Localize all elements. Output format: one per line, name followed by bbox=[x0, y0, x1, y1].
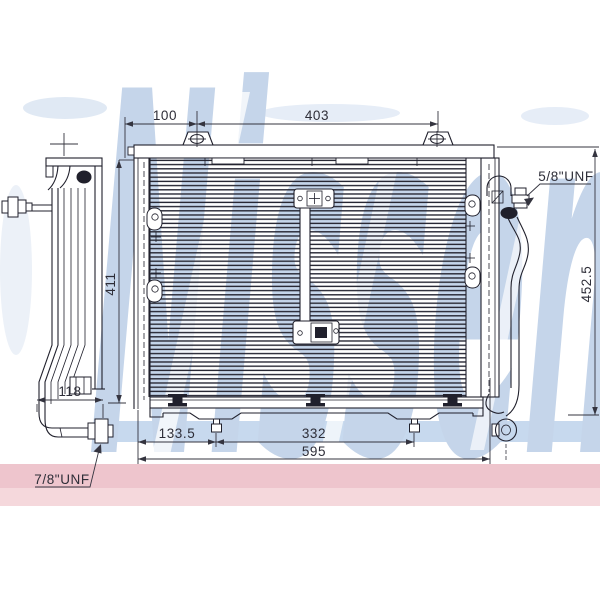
product-drawing-page: { "watermark": { "brand_text": "Nissens"… bbox=[0, 0, 600, 600]
dim-label-100: 100 bbox=[153, 108, 177, 123]
label-7-8-unf: 7/8"UNF bbox=[34, 472, 90, 487]
dim-label-595: 595 bbox=[302, 444, 326, 459]
condenser-body bbox=[128, 131, 499, 432]
dim-label-452-5: 452.5 bbox=[579, 266, 594, 303]
dim-label-133-5: 133.5 bbox=[159, 426, 196, 441]
bottom-pin-right bbox=[410, 419, 420, 432]
right-bracket-tab-upper bbox=[465, 195, 480, 216]
dim-label-118: 118 bbox=[58, 384, 81, 399]
right-bracket-tab-lower bbox=[465, 267, 480, 288]
pipe-top-bracket bbox=[46, 158, 102, 166]
left-bracket-tab-upper bbox=[147, 208, 162, 230]
watermark-smudge bbox=[23, 97, 107, 119]
label-5-8-unf: 5/8"UNF bbox=[538, 169, 594, 184]
pipe-elbow-joint bbox=[501, 207, 518, 219]
left-bracket-tab-lower bbox=[147, 280, 162, 302]
dim-label-411: 411 bbox=[103, 272, 118, 295]
pipe-clamp bbox=[77, 171, 92, 184]
dim-label-332: 332 bbox=[302, 426, 326, 441]
condenser-technical-drawing: Nissens bbox=[0, 0, 600, 600]
dim-label-403: 403 bbox=[305, 108, 329, 123]
bottom-pin-left bbox=[212, 419, 222, 432]
